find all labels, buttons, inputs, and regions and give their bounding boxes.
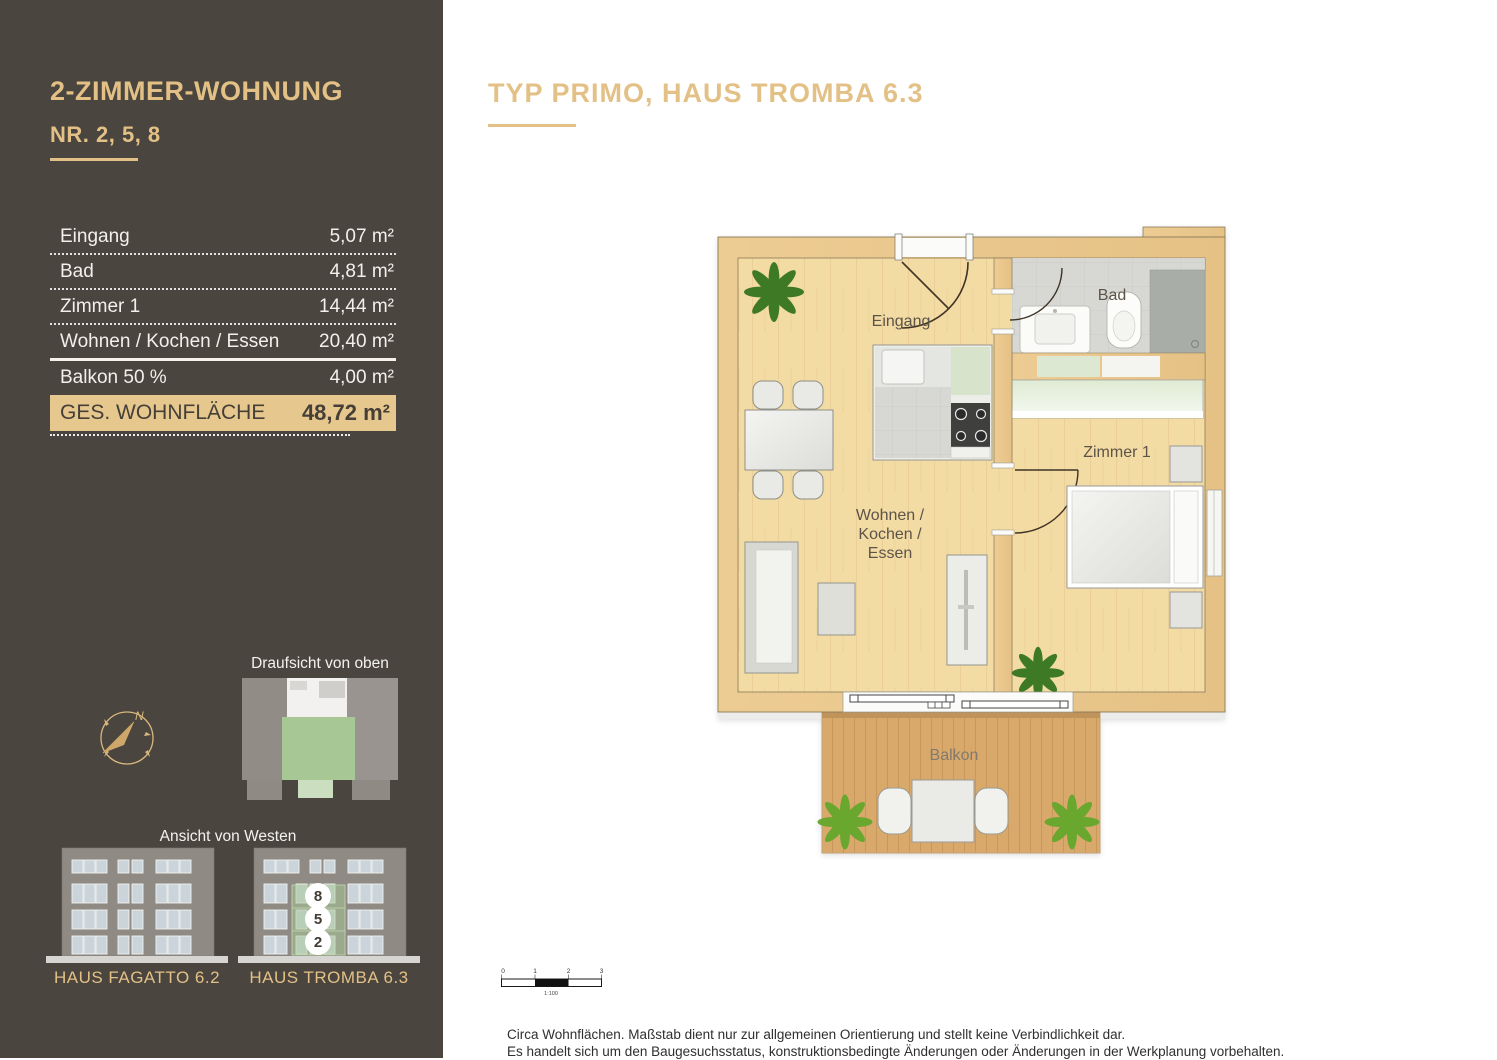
unit-number-2: 2	[314, 934, 322, 951]
dotted-divider	[50, 434, 350, 436]
unit-number-5: 5	[314, 911, 322, 928]
table-row: Bad 4,81 m²	[50, 255, 396, 290]
table-row: Wohnen / Kochen / Essen 20,40 m²	[50, 325, 396, 361]
total-value: 48,72 m²	[302, 400, 390, 426]
row-label: Wohnen / Kochen / Essen	[60, 331, 279, 353]
dining-table	[745, 410, 833, 470]
row-value: 14,44 m²	[319, 296, 394, 318]
disclaimer-line-2: Es handelt sich um den Baugesuchsstatus,…	[507, 1043, 1307, 1060]
label-line: Essen	[820, 544, 960, 563]
ledge-inset	[1102, 356, 1160, 377]
plant-icon	[1012, 647, 1065, 700]
total-label: GES. WOHNFLÄCHE	[60, 401, 265, 425]
apartment-numbers: NR. 2, 5, 8	[50, 122, 161, 148]
row-label: Bad	[60, 261, 94, 283]
balcony-chair	[975, 788, 1008, 834]
row-label: Balkon 50 %	[60, 367, 167, 389]
north-label: N	[135, 709, 144, 723]
balcony-chair	[878, 788, 911, 834]
unit-number-8: 8	[314, 888, 322, 905]
room-label-bad: Bad	[1062, 286, 1162, 305]
scale-tick-2: 2	[567, 968, 571, 975]
building-elevation-tromba: 8 5 2	[238, 846, 420, 964]
label-line: Wohnen /	[820, 506, 960, 525]
row-value: 4,00 m²	[330, 367, 394, 389]
bed	[1067, 486, 1203, 588]
table-row: Balkon 50 % 4,00 m²	[50, 361, 396, 394]
page-title: TYP PRIMO, HAUS TROMBA 6.3	[488, 78, 924, 109]
plant-icon	[1045, 795, 1100, 850]
room-label-wohnen-kochen-essen: Wohnen / Kochen / Essen	[820, 506, 960, 563]
chair	[793, 381, 823, 409]
apartment-type-title: 2-ZIMMER-WOHNUNG	[50, 76, 343, 107]
wardrobe	[1012, 380, 1203, 418]
nightstand	[1170, 592, 1202, 628]
stove	[951, 403, 990, 447]
disclaimer-line-1: Circa Wohnflächen. Maßstab dient nur zur…	[507, 1026, 1307, 1043]
ledge-inset	[1037, 356, 1100, 377]
kitchen-sink	[882, 350, 924, 384]
scale-bar: 0 1 2 3 1:100	[500, 966, 612, 1000]
page: { "sidebar": { "title": "2-ZIMMER-WOHNUN…	[0, 0, 1497, 1058]
tv-cabinet	[947, 555, 987, 665]
slab-shadow	[1100, 712, 1225, 719]
building-name-fagatto: HAUS FAGATTO 6.2	[46, 968, 228, 988]
scale-tick-0: 0	[501, 968, 505, 975]
row-value: 4,81 m²	[330, 261, 394, 283]
balcony-table	[912, 780, 974, 842]
chair	[753, 471, 783, 499]
room-label-eingang: Eingang	[836, 312, 966, 331]
row-label: Eingang	[60, 226, 130, 248]
sliding-door	[843, 692, 1073, 712]
kitchen-counter	[951, 347, 990, 395]
top-view-diagram	[242, 676, 398, 804]
building-elevation-fagatto	[46, 846, 228, 964]
sidebar: 2-ZIMMER-WOHNUNG NR. 2, 5, 8 Eingang 5,0…	[0, 0, 443, 1058]
area-table: Eingang 5,07 m² Bad 4,81 m² Zimmer 1 14,…	[50, 220, 396, 436]
bathroom	[1012, 258, 1205, 353]
balcony	[818, 712, 1101, 853]
sofa	[745, 542, 798, 673]
plant-icon	[818, 795, 873, 850]
coffee-table	[818, 583, 855, 635]
elevation-caption: Ansicht von Westen	[148, 828, 308, 846]
room-label-balkon: Balkon	[904, 746, 1004, 765]
slab-shadow	[718, 712, 822, 719]
disclaimer: Circa Wohnflächen. Maßstab dient nur zur…	[507, 1026, 1307, 1060]
table-row: Zimmer 1 14,44 m²	[50, 290, 396, 325]
label-line: Kochen /	[820, 525, 960, 544]
table-row: Eingang 5,07 m²	[50, 220, 396, 255]
room-label-zimmer1: Zimmer 1	[1057, 443, 1177, 462]
chair	[793, 471, 823, 499]
compass-icon: N	[96, 705, 160, 769]
scale-ratio: 1:100	[544, 991, 558, 997]
chair	[753, 381, 783, 409]
top-view-caption: Draufsicht von oben	[240, 655, 400, 673]
row-value: 5,07 m²	[330, 226, 394, 248]
gold-divider	[50, 158, 138, 161]
unit-balcony	[298, 780, 333, 798]
plant-icon	[744, 262, 804, 322]
row-label: Zimmer 1	[60, 296, 140, 318]
total-area-row: GES. WOHNFLÄCHE 48,72 m²	[50, 395, 396, 431]
unit-number-badges: 8 5 2	[305, 883, 331, 955]
bedroom-window	[1207, 490, 1222, 576]
highlighted-unit	[282, 717, 355, 780]
scale-tick-1: 1	[533, 968, 537, 975]
row-value: 20,40 m²	[319, 331, 394, 353]
building-name-tromba: HAUS TROMBA 6.3	[238, 968, 420, 988]
gold-divider	[488, 124, 576, 127]
scale-tick-3: 3	[600, 968, 604, 975]
kitchen	[873, 345, 992, 460]
